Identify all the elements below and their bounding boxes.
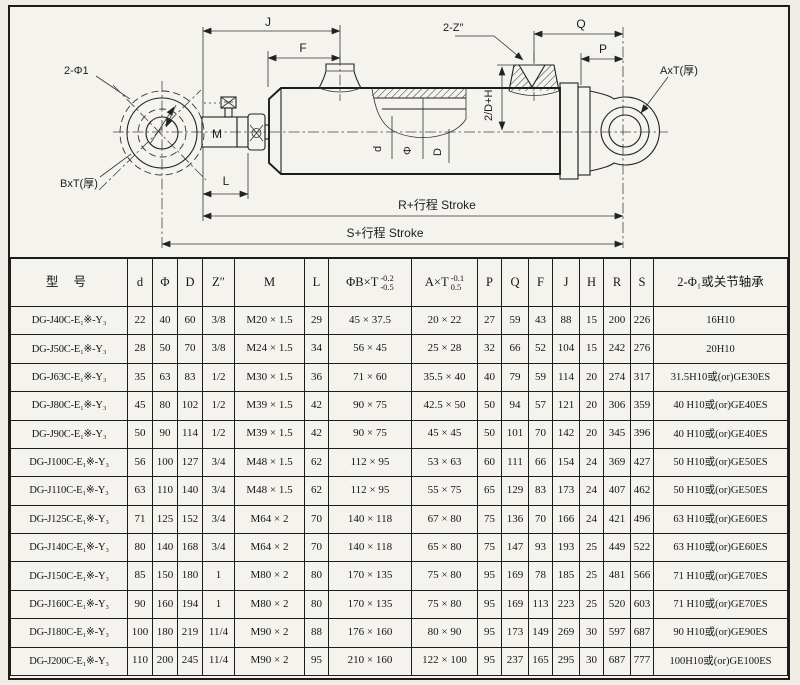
- holes-label: 2-Φ1: [64, 65, 89, 77]
- value-cell: 173: [502, 619, 529, 647]
- value-cell: 173: [553, 477, 580, 505]
- value-cell: M80 × 2: [235, 562, 305, 590]
- value-cell: 306: [604, 392, 631, 420]
- value-cell: 50: [478, 392, 502, 420]
- bearing-cell: 71 H10或(or)GE70ES: [654, 562, 788, 590]
- value-cell: 30: [580, 647, 604, 676]
- value-cell: 15: [580, 307, 604, 335]
- value-cell: 67 × 80: [412, 505, 478, 533]
- at-label: A×T: [425, 274, 449, 288]
- value-cell: 20: [580, 363, 604, 391]
- value-cell: 70: [305, 505, 329, 533]
- value-cell: 170 × 135: [329, 562, 412, 590]
- value-cell: 60: [178, 307, 203, 335]
- value-cell: 94: [502, 392, 529, 420]
- value-cell: M39 × 1.5: [235, 392, 305, 420]
- value-cell: 245: [178, 647, 203, 676]
- value-cell: 75 × 80: [412, 590, 478, 618]
- value-cell: M64 × 2: [235, 534, 305, 562]
- bt-tolerance: -0.2-0.5: [380, 274, 393, 292]
- value-cell: 11/4: [203, 619, 235, 647]
- value-cell: 35.5 × 40: [412, 363, 478, 391]
- value-cell: 93: [529, 534, 553, 562]
- value-cell: 57: [529, 392, 553, 420]
- col-header-bt: ΦB×T-0.2-0.5: [329, 258, 412, 307]
- cap-eye-thickness-label: AxT(厚): [660, 64, 698, 77]
- value-cell: 80: [128, 534, 153, 562]
- grease-nipple-stem: [225, 108, 232, 117]
- col-header-D: D: [178, 258, 203, 307]
- model-cell: DG-J140C-E₁※-Y₃: [11, 534, 128, 562]
- value-cell: 62: [305, 448, 329, 476]
- table-row: DG-J63C-E₁※-Y₃3563831/2M30 × 1.53671 × 6…: [11, 363, 788, 391]
- value-cell: 180: [153, 619, 178, 647]
- value-cell: 276: [631, 335, 654, 363]
- value-cell: 176 × 160: [329, 619, 412, 647]
- value-cell: 603: [631, 590, 654, 618]
- model-cell: DG-J110C-E₁※-Y₃: [11, 477, 128, 505]
- table-row: DG-J180C-E₁※-Y₃10018021911/4M90 × 288176…: [11, 619, 788, 647]
- value-cell: 566: [631, 562, 654, 590]
- value-cell: 66: [502, 335, 529, 363]
- col-header-at: A×T-0.10.5: [412, 258, 478, 307]
- value-cell: 193: [553, 534, 580, 562]
- value-cell: 20: [580, 420, 604, 448]
- value-cell: 32: [478, 335, 502, 363]
- model-cell: DG-J63C-E₁※-Y₃: [11, 363, 128, 391]
- value-cell: 140: [153, 534, 178, 562]
- value-cell: 70: [529, 420, 553, 448]
- value-cell: 496: [631, 505, 654, 533]
- value-cell: M64 × 2: [235, 505, 305, 533]
- table-row: DG-J150C-E₁※-Y₃851501801M80 × 280170 × 1…: [11, 562, 788, 590]
- value-cell: M39 × 1.5: [235, 420, 305, 448]
- bearing-cell: 90 H10或(or)GE90ES: [654, 619, 788, 647]
- value-cell: 317: [631, 363, 654, 391]
- value-cell: 55 × 75: [412, 477, 478, 505]
- bearing-cell: 71 H10或(or)GE70ES: [654, 590, 788, 618]
- bore-d-label: d: [372, 146, 384, 152]
- value-cell: 88: [553, 307, 580, 335]
- model-cell: DG-J200C-E₁※-Y₃: [11, 647, 128, 676]
- value-cell: 24: [580, 448, 604, 476]
- value-cell: 113: [529, 590, 553, 618]
- value-cell: 71 × 60: [329, 363, 412, 391]
- value-cell: 1/2: [203, 392, 235, 420]
- model-cell: DG-J180C-E₁※-Y₃: [11, 619, 128, 647]
- dim-r-label: R+行程 Stroke: [398, 197, 476, 212]
- value-cell: 90 × 75: [329, 420, 412, 448]
- value-cell: 90: [153, 420, 178, 448]
- col-header-S: S: [631, 258, 654, 307]
- value-cell: 101: [502, 420, 529, 448]
- value-cell: 63: [153, 363, 178, 391]
- col-header-J: J: [553, 258, 580, 307]
- value-cell: 449: [604, 534, 631, 562]
- value-cell: 50: [128, 420, 153, 448]
- value-cell: 223: [553, 590, 580, 618]
- value-cell: 522: [631, 534, 654, 562]
- value-cell: 1: [203, 562, 235, 590]
- value-cell: M24 × 1.5: [235, 335, 305, 363]
- value-cell: 295: [553, 647, 580, 676]
- model-cell: DG-J50C-E₁※-Y₃: [11, 335, 128, 363]
- header-row: 型 号 d Φ D Z″ M L ΦB×T-0.2-0.5 A×T-0.10.5…: [11, 258, 788, 307]
- table-row: DG-J80C-E₁※-Y₃45801021/2M39 × 1.54290 × …: [11, 392, 788, 420]
- bearing-cell: 31.5H10或(or)GE30ES: [654, 363, 788, 391]
- value-cell: 114: [553, 363, 580, 391]
- spec-table-body: DG-J40C-E₁※-Y₃2240603/8M20 × 1.52945 × 3…: [11, 307, 788, 676]
- value-cell: 95: [478, 647, 502, 676]
- value-cell: 80: [153, 392, 178, 420]
- value-cell: 168: [178, 534, 203, 562]
- value-cell: 62: [305, 477, 329, 505]
- table-row: DG-J110C-E₁※-Y₃631101403/4M48 × 1.562112…: [11, 477, 788, 505]
- value-cell: 200: [153, 647, 178, 676]
- value-cell: 88: [305, 619, 329, 647]
- value-cell: 219: [178, 619, 203, 647]
- eye-diagonal-b: [99, 90, 201, 190]
- value-cell: 59: [502, 307, 529, 335]
- value-cell: 687: [631, 619, 654, 647]
- value-cell: 56: [128, 448, 153, 476]
- value-cell: 42: [305, 392, 329, 420]
- bt-label: ΦB×T: [346, 274, 378, 288]
- bearing-cell: 63 H10或(or)GE60ES: [654, 505, 788, 533]
- holes-leader: [96, 76, 130, 99]
- table-row: DG-J125C-E₁※-Y₃711251523/4M64 × 270140 ×…: [11, 505, 788, 533]
- value-cell: 3/8: [203, 307, 235, 335]
- value-cell: 53 × 63: [412, 448, 478, 476]
- value-cell: 29: [305, 307, 329, 335]
- value-cell: 194: [178, 590, 203, 618]
- value-cell: 114: [178, 420, 203, 448]
- value-cell: 36: [305, 363, 329, 391]
- value-cell: 1/2: [203, 363, 235, 391]
- value-cell: 11/4: [203, 647, 235, 676]
- value-cell: M30 × 1.5: [235, 363, 305, 391]
- value-cell: 140 × 118: [329, 534, 412, 562]
- dim-j-label: J: [265, 15, 271, 29]
- value-cell: 170 × 135: [329, 590, 412, 618]
- col-header-L: L: [305, 258, 329, 307]
- value-cell: 22: [128, 307, 153, 335]
- value-cell: 3/4: [203, 534, 235, 562]
- model-cell: DG-J150C-E₁※-Y₃: [11, 562, 128, 590]
- value-cell: 60: [478, 448, 502, 476]
- value-cell: 90 × 75: [329, 392, 412, 420]
- value-cell: 112 × 95: [329, 477, 412, 505]
- value-cell: 481: [604, 562, 631, 590]
- value-cell: 150: [153, 562, 178, 590]
- col-header-M: M: [235, 258, 305, 307]
- value-cell: 102: [178, 392, 203, 420]
- thread-label: M: [212, 127, 222, 141]
- value-cell: 20 × 22: [412, 307, 478, 335]
- value-cell: 149: [529, 619, 553, 647]
- value-cell: 154: [553, 448, 580, 476]
- value-cell: 210 × 160: [329, 647, 412, 676]
- bearing-cell: 40 H10或(or)GE40ES: [654, 392, 788, 420]
- value-cell: 79: [502, 363, 529, 391]
- value-cell: 242: [604, 335, 631, 363]
- col-header-d: d: [128, 258, 153, 307]
- value-cell: 43: [529, 307, 553, 335]
- value-cell: 200: [604, 307, 631, 335]
- table-row: DG-J160C-E₁※-Y₃901601941M80 × 280170 × 1…: [11, 590, 788, 618]
- value-cell: 15: [580, 335, 604, 363]
- value-cell: 3/4: [203, 448, 235, 476]
- spec-table: 型 号 d Φ D Z″ M L ΦB×T-0.2-0.5 A×T-0.10.5…: [10, 257, 788, 676]
- value-cell: 185: [553, 562, 580, 590]
- table-row: DG-J100C-E₁※-Y₃561001273/4M48 × 1.562112…: [11, 448, 788, 476]
- value-cell: 95: [478, 590, 502, 618]
- value-cell: 75: [478, 505, 502, 533]
- at-tolerance: -0.10.5: [451, 274, 464, 292]
- bearing-cell: 16H10: [654, 307, 788, 335]
- ports-leader: [455, 36, 523, 60]
- value-cell: 3/4: [203, 477, 235, 505]
- value-cell: 359: [631, 392, 654, 420]
- bearing-cell: 50 H10或(or)GE50ES: [654, 448, 788, 476]
- value-cell: 121: [553, 392, 580, 420]
- value-cell: 83: [178, 363, 203, 391]
- value-cell: 40: [478, 363, 502, 391]
- value-cell: M90 × 2: [235, 647, 305, 676]
- value-cell: 462: [631, 477, 654, 505]
- bearing-cell: 63 H10或(or)GE60ES: [654, 534, 788, 562]
- model-cell: DG-J80C-E₁※-Y₃: [11, 392, 128, 420]
- value-cell: 25: [580, 534, 604, 562]
- value-cell: 42: [305, 420, 329, 448]
- value-cell: M90 × 2: [235, 619, 305, 647]
- dim-q-label: Q: [576, 17, 585, 31]
- value-cell: 687: [604, 647, 631, 676]
- dim-p-label: P: [599, 42, 607, 56]
- bore-D-label: D: [432, 148, 444, 156]
- value-cell: 3/8: [203, 335, 235, 363]
- cap-flange-2: [578, 87, 590, 175]
- value-cell: 127: [178, 448, 203, 476]
- value-cell: 56 × 45: [329, 335, 412, 363]
- value-cell: 45 × 45: [412, 420, 478, 448]
- value-cell: 95: [478, 562, 502, 590]
- value-cell: 65: [478, 477, 502, 505]
- value-cell: 226: [631, 307, 654, 335]
- bearing-cell: 100H10或(or)GE100ES: [654, 647, 788, 676]
- dim-2dh-label: 2/D+H: [483, 89, 495, 121]
- value-cell: 50: [478, 420, 502, 448]
- model-cell: DG-J90C-E₁※-Y₃: [11, 420, 128, 448]
- col-header-bearing: 2-Φ₁或关节轴承: [654, 258, 788, 307]
- value-cell: 59: [529, 363, 553, 391]
- col-header-model: 型 号: [11, 258, 128, 307]
- value-cell: 28: [128, 335, 153, 363]
- value-cell: 166: [553, 505, 580, 533]
- cap-eye-ring: [601, 107, 649, 155]
- col-header-phi: Φ: [153, 258, 178, 307]
- value-cell: 66: [529, 448, 553, 476]
- value-cell: 35: [128, 363, 153, 391]
- value-cell: 421: [604, 505, 631, 533]
- value-cell: 777: [631, 647, 654, 676]
- value-cell: 237: [502, 647, 529, 676]
- value-cell: 147: [502, 534, 529, 562]
- value-cell: 165: [529, 647, 553, 676]
- value-cell: 30: [580, 619, 604, 647]
- value-cell: 110: [128, 647, 153, 676]
- value-cell: 110: [153, 477, 178, 505]
- value-cell: 129: [502, 477, 529, 505]
- value-cell: 269: [553, 619, 580, 647]
- value-cell: 63: [128, 477, 153, 505]
- value-cell: 152: [178, 505, 203, 533]
- value-cell: 80: [305, 562, 329, 590]
- bore-phi-label: Φ: [402, 146, 414, 155]
- value-cell: 407: [604, 477, 631, 505]
- value-cell: 95: [305, 647, 329, 676]
- value-cell: 75 × 80: [412, 562, 478, 590]
- cap-eye-hole: [609, 115, 641, 147]
- model-cell: DG-J40C-E₁※-Y₃: [11, 307, 128, 335]
- value-cell: 160: [153, 590, 178, 618]
- value-cell: 70: [305, 534, 329, 562]
- col-header-Q: Q: [502, 258, 529, 307]
- value-cell: 52: [529, 335, 553, 363]
- value-cell: 274: [604, 363, 631, 391]
- bore-hatch: [372, 89, 466, 98]
- value-cell: 80: [305, 590, 329, 618]
- value-cell: 25 × 28: [412, 335, 478, 363]
- value-cell: 345: [604, 420, 631, 448]
- value-cell: 45: [128, 392, 153, 420]
- value-cell: 80 × 90: [412, 619, 478, 647]
- ports-label: 2-Z″: [443, 22, 464, 34]
- value-cell: 122 × 100: [412, 647, 478, 676]
- value-cell: 100: [153, 448, 178, 476]
- value-cell: M48 × 1.5: [235, 477, 305, 505]
- dim-l-label: L: [223, 174, 230, 188]
- model-cell: DG-J125C-E₁※-Y₃: [11, 505, 128, 533]
- catalog-sheet: 2-Φ1 BxT(厚) M 2-Z″: [8, 5, 790, 680]
- axt-leader: [641, 77, 668, 113]
- col-header-H: H: [580, 258, 604, 307]
- value-cell: 95: [478, 619, 502, 647]
- value-cell: 78: [529, 562, 553, 590]
- rod-eye-thickness-label: BxT(厚): [60, 177, 98, 190]
- value-cell: 136: [502, 505, 529, 533]
- dim-s-label: S+行程 Stroke: [346, 225, 423, 240]
- value-cell: 104: [553, 335, 580, 363]
- col-header-F: F: [529, 258, 553, 307]
- value-cell: 180: [178, 562, 203, 590]
- value-cell: 112 × 95: [329, 448, 412, 476]
- value-cell: 140: [178, 477, 203, 505]
- cylinder-body: [269, 88, 560, 174]
- value-cell: M20 × 1.5: [235, 307, 305, 335]
- model-cell: DG-J100C-E₁※-Y₃: [11, 448, 128, 476]
- value-cell: 597: [604, 619, 631, 647]
- value-cell: 27: [478, 307, 502, 335]
- value-cell: 50: [153, 335, 178, 363]
- cylinder-drawing: 2-Φ1 BxT(厚) M 2-Z″: [10, 7, 788, 257]
- value-cell: 25: [580, 562, 604, 590]
- value-cell: 142: [553, 420, 580, 448]
- col-header-R: R: [604, 258, 631, 307]
- value-cell: 396: [631, 420, 654, 448]
- value-cell: 111: [502, 448, 529, 476]
- bearing-cell: 20H10: [654, 335, 788, 363]
- col-header-z: Z″: [203, 258, 235, 307]
- value-cell: 169: [502, 562, 529, 590]
- value-cell: 427: [631, 448, 654, 476]
- table-row: DG-J90C-E₁※-Y₃50901141/2M39 × 1.54290 × …: [11, 420, 788, 448]
- value-cell: 3/4: [203, 505, 235, 533]
- value-cell: 40: [153, 307, 178, 335]
- bearing-cell: 40 H10或(or)GE40ES: [654, 420, 788, 448]
- value-cell: M48 × 1.5: [235, 448, 305, 476]
- bearing-cell: 50 H10或(or)GE50ES: [654, 477, 788, 505]
- value-cell: 125: [153, 505, 178, 533]
- value-cell: 65 × 80: [412, 534, 478, 562]
- dim-f-label: F: [299, 41, 306, 55]
- table-row: DG-J200C-E₁※-Y₃11020024511/4M90 × 295210…: [11, 647, 788, 676]
- grease-nipple-hatch: [221, 97, 236, 108]
- eye-diameter-arrow: [150, 107, 174, 144]
- value-cell: 140 × 118: [329, 505, 412, 533]
- value-cell: 24: [580, 477, 604, 505]
- table-row: DG-J50C-E₁※-Y₃2850703/8M24 × 1.53456 × 4…: [11, 335, 788, 363]
- table-row: DG-J40C-E₁※-Y₃2240603/8M20 × 1.52945 × 3…: [11, 307, 788, 335]
- value-cell: 90: [128, 590, 153, 618]
- value-cell: 70: [529, 505, 553, 533]
- value-cell: 20: [580, 392, 604, 420]
- value-cell: 100: [128, 619, 153, 647]
- model-cell: DG-J160C-E₁※-Y₃: [11, 590, 128, 618]
- value-cell: 42.5 × 50: [412, 392, 478, 420]
- cap-flange-1: [560, 83, 578, 179]
- value-cell: M80 × 2: [235, 590, 305, 618]
- value-cell: 24: [580, 505, 604, 533]
- value-cell: 83: [529, 477, 553, 505]
- col-header-P: P: [478, 258, 502, 307]
- value-cell: 369: [604, 448, 631, 476]
- value-cell: 71: [128, 505, 153, 533]
- value-cell: 520: [604, 590, 631, 618]
- value-cell: 1: [203, 590, 235, 618]
- table-row: DG-J140C-E₁※-Y₃801401683/4M64 × 270140 ×…: [11, 534, 788, 562]
- value-cell: 1/2: [203, 420, 235, 448]
- value-cell: 34: [305, 335, 329, 363]
- value-cell: 45 × 37.5: [329, 307, 412, 335]
- value-cell: 75: [478, 534, 502, 562]
- value-cell: 25: [580, 590, 604, 618]
- value-cell: 70: [178, 335, 203, 363]
- value-cell: 85: [128, 562, 153, 590]
- value-cell: 169: [502, 590, 529, 618]
